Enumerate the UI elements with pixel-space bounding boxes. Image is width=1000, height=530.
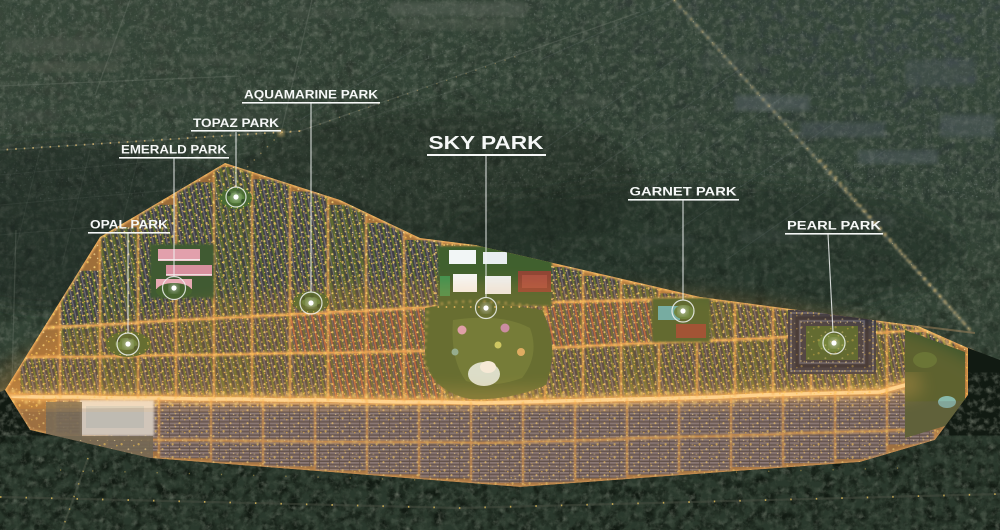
svg-text:OPAL PARK: OPAL PARK xyxy=(90,218,168,232)
svg-text:EMERALD PARK: EMERALD PARK xyxy=(121,143,227,157)
svg-text:PEARL PARK: PEARL PARK xyxy=(787,219,881,233)
svg-text:TOPAZ PARK: TOPAZ PARK xyxy=(193,116,279,130)
svg-text:AQUAMARINE PARK: AQUAMARINE PARK xyxy=(244,88,378,102)
svg-text:SKY PARK: SKY PARK xyxy=(429,132,545,153)
svg-text:GARNET PARK: GARNET PARK xyxy=(630,185,737,199)
